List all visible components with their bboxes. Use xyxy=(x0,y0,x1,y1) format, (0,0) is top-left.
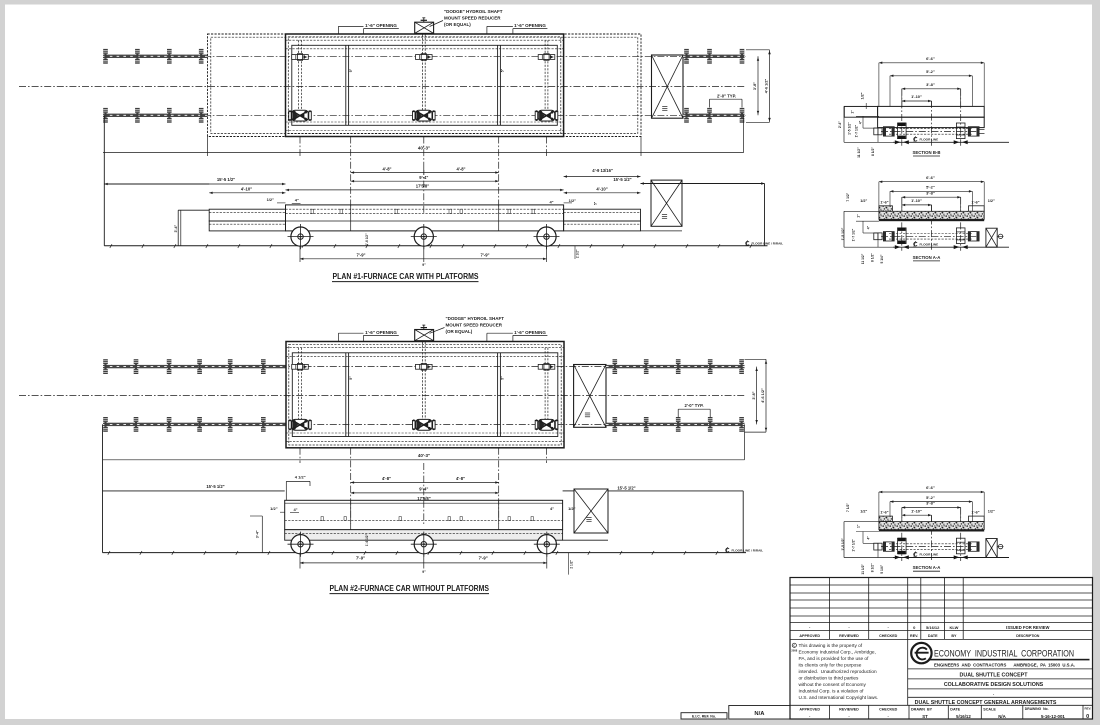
svg-text:3'-8": 3'-8" xyxy=(752,391,756,399)
svg-text:4'-10": 4'-10" xyxy=(241,187,252,192)
svg-text:8 1/2": 8 1/2" xyxy=(871,563,875,572)
svg-text:5'-2": 5'-2" xyxy=(926,69,935,74)
svg-text:15'-5 1/2": 15'-5 1/2" xyxy=(217,177,235,182)
svg-text:9'-4": 9'-4" xyxy=(419,175,428,180)
svg-text:1/2": 1/2" xyxy=(267,197,275,202)
svg-text:4'-6 1/2": 4'-6 1/2" xyxy=(765,79,769,94)
svg-text:FLOOR LINE / R/RAIL: FLOOR LINE / R/RAIL xyxy=(732,548,764,552)
svg-text:1'-5 1/2": 1'-5 1/2" xyxy=(841,227,845,240)
svg-text:This drawing is the property o: This drawing is the property of xyxy=(799,643,863,649)
svg-text:ISSUED FOR REVIEW: ISSUED FOR REVIEW xyxy=(1006,625,1049,630)
svg-text:4 1/2": 4 1/2" xyxy=(295,475,306,480)
svg-text:6'-6": 6'-6" xyxy=(926,485,935,490)
svg-text:4": 4" xyxy=(859,120,863,124)
svg-text:1'-6" OPENING: 1'-6" OPENING xyxy=(514,330,546,335)
svg-text:4'-8": 4'-8" xyxy=(382,166,391,171)
svg-text:1'-6": 1'-6" xyxy=(971,200,979,204)
svg-text:5": 5" xyxy=(594,201,598,205)
svg-text:3'-8": 3'-8" xyxy=(753,82,757,90)
svg-text:APPROVED: APPROVED xyxy=(799,707,820,711)
svg-text:COLLABORATIVE DESIGN SOLUTIONS: COLLABORATIVE DESIGN SOLUTIONS xyxy=(944,682,1044,688)
svg-text:5": 5" xyxy=(500,376,504,380)
svg-text:4'-6 1/2": 4'-6 1/2" xyxy=(761,388,765,403)
svg-text:REVIEWED: REVIEWED xyxy=(839,707,859,711)
svg-text:2'-0" TYP.: 2'-0" TYP. xyxy=(717,94,736,99)
svg-text:1'-7 1/2": 1'-7 1/2" xyxy=(855,124,859,137)
svg-text:4'-8": 4'-8" xyxy=(382,476,391,481)
svg-text:2 1/2": 2 1/2" xyxy=(576,249,580,258)
svg-text:U.S. and International Copyrig: U.S. and International Copyright laws. xyxy=(799,695,879,701)
svg-text:1'-5 1/2": 1'-5 1/2" xyxy=(841,538,845,551)
svg-text:1/2": 1/2" xyxy=(569,198,577,203)
svg-text:MOUNT SPEED REDUCER: MOUNT SPEED REDUCER xyxy=(444,16,501,21)
svg-text:5": 5" xyxy=(349,376,353,380)
svg-text:ST: ST xyxy=(922,714,928,719)
svg-text:1'-10": 1'-10" xyxy=(911,198,922,203)
svg-text:1'-7 1/2": 1'-7 1/2" xyxy=(851,539,855,552)
svg-text:3'-8": 3'-8" xyxy=(926,190,935,195)
svg-text:4": 4" xyxy=(867,536,871,540)
svg-text:FLOOR LINE: FLOOR LINE xyxy=(920,138,939,142)
svg-text:ENGINEERS AND CONTRACTORS: ENGINEERS AND CONTRACTORS AMBRIDGE, PA 1… xyxy=(934,662,1075,667)
svg-text:5'-2": 5'-2" xyxy=(926,185,935,190)
svg-text:4'-10": 4'-10" xyxy=(596,187,607,192)
svg-text:MOUNT SPEED REDUCER: MOUNT SPEED REDUCER xyxy=(446,323,503,328)
svg-text:1'-5 1/2": 1'-5 1/2" xyxy=(848,122,852,135)
svg-text:9": 9" xyxy=(422,570,426,574)
svg-text:"DODGE" HYDROIL SHAFT: "DODGE" HYDROIL SHAFT xyxy=(446,316,505,321)
svg-text:DUAL SHUTTLE CONCEPT: DUAL SHUTTLE CONCEPT xyxy=(960,672,1029,678)
svg-text:5-16-12-001: 5-16-12-001 xyxy=(1041,714,1065,719)
svg-text:5'-2": 5'-2" xyxy=(926,495,935,500)
svg-text:1/2": 1/2" xyxy=(270,506,278,511)
svg-text:5/16/12: 5/16/12 xyxy=(956,714,971,719)
svg-text:5/16/12: 5/16/12 xyxy=(926,625,940,630)
svg-text:its clients only for the purpo: its clients only for the purpose xyxy=(799,662,862,668)
svg-text:1": 1" xyxy=(851,110,855,114)
svg-text:4": 4" xyxy=(867,225,871,229)
svg-text:17'5/8": 17'5/8" xyxy=(416,184,429,189)
svg-text:SECTION A-A: SECTION A-A xyxy=(913,565,941,570)
svg-text:6'-6": 6'-6" xyxy=(926,175,935,180)
svg-text:3'-4": 3'-4" xyxy=(256,530,260,538)
svg-text:APPROVED: APPROVED xyxy=(799,634,820,638)
svg-text:SECTION B-B: SECTION B-B xyxy=(913,150,941,155)
svg-text:1": 1" xyxy=(857,524,861,528)
svg-text:N/A: N/A xyxy=(998,714,1006,719)
svg-text:7 1/2": 7 1/2" xyxy=(846,192,850,201)
svg-text:1/2": 1/2" xyxy=(988,509,995,513)
svg-text:5": 5" xyxy=(349,68,353,72)
svg-text:5 1/4": 5 1/4" xyxy=(880,564,884,573)
svg-text:1/2": 1/2" xyxy=(861,92,865,99)
svg-text:15'-5 1/2": 15'-5 1/2" xyxy=(617,485,635,490)
svg-text:1'-10": 1'-10" xyxy=(911,508,922,513)
svg-text:3'-8": 3'-8" xyxy=(926,501,935,506)
svg-text:1'-6 1/2": 1'-6 1/2" xyxy=(365,233,369,246)
svg-text:2'-4": 2'-4" xyxy=(838,121,842,129)
svg-text:Industrial Corp. is a violatio: Industrial Corp. is a violation of xyxy=(799,689,865,695)
svg-text:CHECKED: CHECKED xyxy=(879,634,898,638)
svg-text:ECONOMY INDUSTRIAL CORPORATI: ECONOMY INDUSTRIAL CORPORATION xyxy=(934,648,1074,658)
svg-text:7'-9": 7'-9" xyxy=(356,252,365,257)
svg-text:N/A: N/A xyxy=(754,711,765,717)
svg-text:1'-6": 1'-6" xyxy=(880,200,888,204)
svg-text:4'-9 13/16": 4'-9 13/16" xyxy=(592,168,613,173)
svg-text:FLOOR LINE / R/RAIL: FLOOR LINE / R/RAIL xyxy=(752,242,784,246)
svg-text:2008: 2008 xyxy=(791,649,797,653)
svg-text:5": 5" xyxy=(500,68,504,72)
svg-text:2 1/2": 2 1/2" xyxy=(570,560,574,569)
svg-text:SECTION A-A: SECTION A-A xyxy=(913,255,941,260)
svg-text:7'-9": 7'-9" xyxy=(480,252,489,257)
svg-text:FLOOR LINE: FLOOR LINE xyxy=(920,242,939,246)
svg-text:DESCRIPTION: DESCRIPTION xyxy=(1016,634,1040,638)
svg-text:SCALE: SCALE xyxy=(983,707,996,711)
svg-text:Economy Industrial Corp., Ambr: Economy Industrial Corp., Ambridge, xyxy=(799,649,876,655)
svg-text:DATE: DATE xyxy=(950,707,960,711)
svg-text:1": 1" xyxy=(857,214,861,218)
svg-text:BY: BY xyxy=(951,634,957,638)
svg-text:FLOOR LINE: FLOOR LINE xyxy=(920,553,939,557)
svg-text:15'-5 1/2": 15'-5 1/2" xyxy=(613,177,631,182)
svg-text:1'-7 1/2": 1'-7 1/2" xyxy=(851,228,855,241)
svg-text:5 1/4": 5 1/4" xyxy=(880,254,884,263)
svg-text:PA, and is provided for the us: PA, and is provided for the use of xyxy=(799,656,870,662)
svg-text:11 1/2": 11 1/2" xyxy=(857,147,861,158)
svg-text:7'-9": 7'-9" xyxy=(356,556,365,561)
svg-text:2'-0" TYP.: 2'-0" TYP. xyxy=(685,403,704,408)
svg-text:CHECKED: CHECKED xyxy=(879,707,898,711)
svg-text:(OR EQUAL): (OR EQUAL) xyxy=(444,22,471,27)
svg-text:REVIEWED: REVIEWED xyxy=(839,634,859,638)
svg-text:without the consent of Economy: without the consent of Economy xyxy=(799,682,867,688)
svg-text:"DODGE" HYDROIL SHAFT: "DODGE" HYDROIL SHAFT xyxy=(444,9,503,14)
svg-text:DRAWING No.: DRAWING No. xyxy=(1025,707,1049,711)
svg-text:1'-6" OPENING: 1'-6" OPENING xyxy=(365,23,397,28)
svg-text:4'-8": 4'-8" xyxy=(456,476,465,481)
svg-text:(OR EQUAL): (OR EQUAL) xyxy=(446,329,473,334)
svg-text:1'-6": 1'-6" xyxy=(971,511,979,515)
svg-text:4": 4" xyxy=(550,506,554,511)
svg-text:9": 9" xyxy=(422,263,426,267)
svg-text:or distribution to third parti: or distribution to third parties xyxy=(799,676,860,682)
svg-text:4": 4" xyxy=(549,200,553,205)
svg-text:1'-10": 1'-10" xyxy=(911,94,922,99)
svg-text:3'-8": 3'-8" xyxy=(926,82,935,87)
svg-text:DATE: DATE xyxy=(928,634,938,638)
svg-text:C: C xyxy=(793,644,795,648)
svg-text:4'-8": 4'-8" xyxy=(456,166,465,171)
svg-text:intended. Unauthorized reprod: intended. Unauthorized reproduction xyxy=(799,669,878,675)
svg-text:1'-6 1/2": 1'-6 1/2" xyxy=(365,533,369,546)
svg-text:8 1/2": 8 1/2" xyxy=(871,147,875,156)
svg-text:1'-6": 1'-6" xyxy=(880,511,888,515)
svg-text:REV.: REV. xyxy=(910,634,918,638)
svg-text:7'-9": 7'-9" xyxy=(479,556,488,561)
svg-text:9'-4": 9'-4" xyxy=(419,487,428,492)
svg-text:1/2": 1/2" xyxy=(988,199,995,203)
svg-text:1/2": 1/2" xyxy=(860,509,867,513)
svg-text:1'-6" OPENING: 1'-6" OPENING xyxy=(365,330,397,335)
svg-text:DRAWN BY: DRAWN BY xyxy=(911,707,933,711)
svg-text:7 1/2": 7 1/2" xyxy=(846,503,850,512)
svg-text:40'-3": 40'-3" xyxy=(418,453,430,458)
svg-text:4": 4" xyxy=(293,507,297,512)
svg-text:4": 4" xyxy=(295,198,299,203)
svg-text:1/2": 1/2" xyxy=(860,199,867,203)
svg-text:11 1/2": 11 1/2" xyxy=(861,253,865,264)
svg-text:1'-6" OPENING: 1'-6" OPENING xyxy=(514,23,546,28)
svg-text:8 1/2": 8 1/2" xyxy=(871,253,875,262)
svg-text:15'-5 1/2": 15'-5 1/2" xyxy=(206,484,224,489)
svg-text:E.I.C. REF. No.: E.I.C. REF. No. xyxy=(692,715,716,719)
svg-text:REV.: REV. xyxy=(1085,707,1092,711)
svg-text:6'-6": 6'-6" xyxy=(926,56,935,61)
svg-text:PLAN #1-FURNACE CAR WITH PLATF: PLAN #1-FURNACE CAR WITH PLATFORMS xyxy=(333,272,479,281)
svg-text:0: 0 xyxy=(1086,714,1089,720)
svg-text:3'-4": 3'-4" xyxy=(174,224,178,232)
svg-text:11 1/2": 11 1/2" xyxy=(861,564,865,575)
svg-text:PLAN #2-FURNACE CAR WITHOUT PL: PLAN #2-FURNACE CAR WITHOUT PLATFORMS xyxy=(330,584,490,593)
svg-text:KLW: KLW xyxy=(949,625,958,630)
